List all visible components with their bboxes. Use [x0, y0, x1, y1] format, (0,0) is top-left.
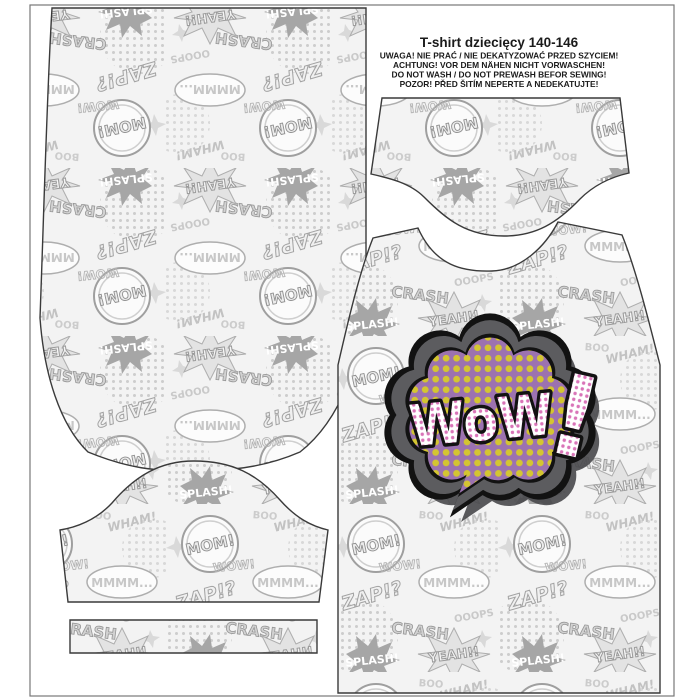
piece-back-panel [40, 8, 366, 470]
warning-line-2: ACHTUNG! VOR DEM NÄHEN NICHT VORWASCHEN! [393, 60, 605, 70]
piece-sleeve-top [371, 98, 629, 236]
piece-neckband [70, 620, 317, 653]
warning-line-1: UWAGA! NIE PRAĆ / NIE DEKATYZOWAĆ PRZED … [380, 50, 619, 61]
warning-line-4: POZOR! PŘED ŠITÍM NEPERTE A NEDEKATUJTE! [400, 78, 599, 89]
pattern-sheet: WHAM! BOO MOM! MMMM... ZAP!? WOW! CRASH … [0, 0, 700, 700]
page-title: T-shirt dziecięcy 140-146 [420, 35, 579, 50]
warning-line-3: DO NOT WASH / DO NOT PREWASH BEFOR SEWIN… [392, 70, 607, 80]
header: T-shirt dziecięcy 140-146 UWAGA! NIE PRA… [380, 35, 619, 89]
piece-sleeve-bottom [60, 461, 328, 602]
wow-word: WoW [407, 382, 556, 460]
